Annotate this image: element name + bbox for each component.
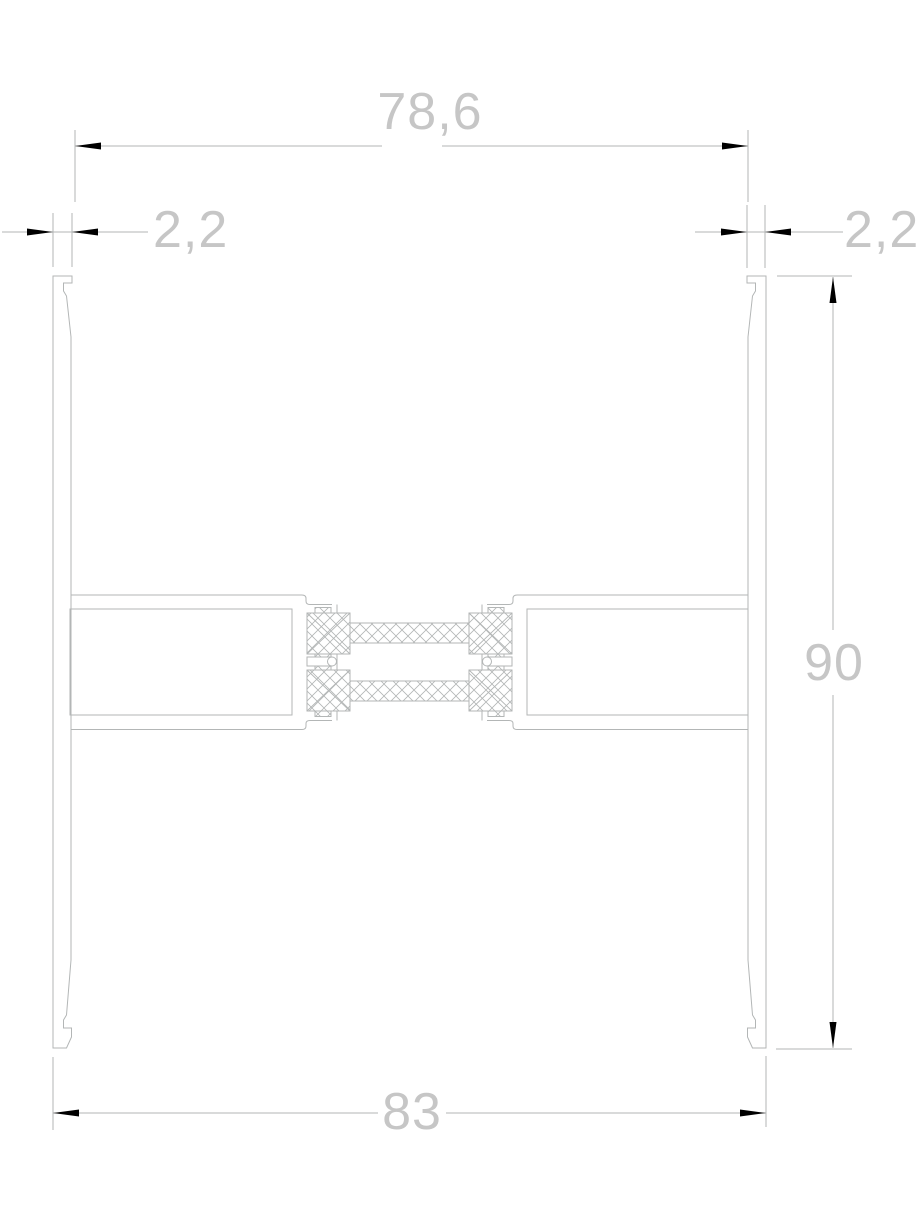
thermal-strip-upper — [307, 608, 512, 660]
dim-bottom-width-label: 83 — [382, 1086, 442, 1138]
central-arm-faces — [71, 595, 748, 730]
cad-canvas: 78,6 2,2 2,2 90 83 — [0, 0, 920, 1226]
clip-plates — [307, 657, 512, 666]
chamber-left — [70, 609, 292, 715]
right-wall — [747, 276, 766, 1048]
thermal-strip-lower — [307, 665, 512, 717]
dim-height-label: 90 — [804, 637, 864, 689]
dim-top-width-label: 78,6 — [377, 86, 482, 138]
dim-left-wall-label: 2,2 — [153, 204, 228, 256]
profile-drawing-svg — [0, 0, 920, 1226]
profile-outline — [53, 276, 766, 1048]
left-wall — [53, 276, 72, 1048]
dim-right-wall-label: 2,2 — [844, 204, 919, 256]
chamber-right — [527, 609, 748, 715]
